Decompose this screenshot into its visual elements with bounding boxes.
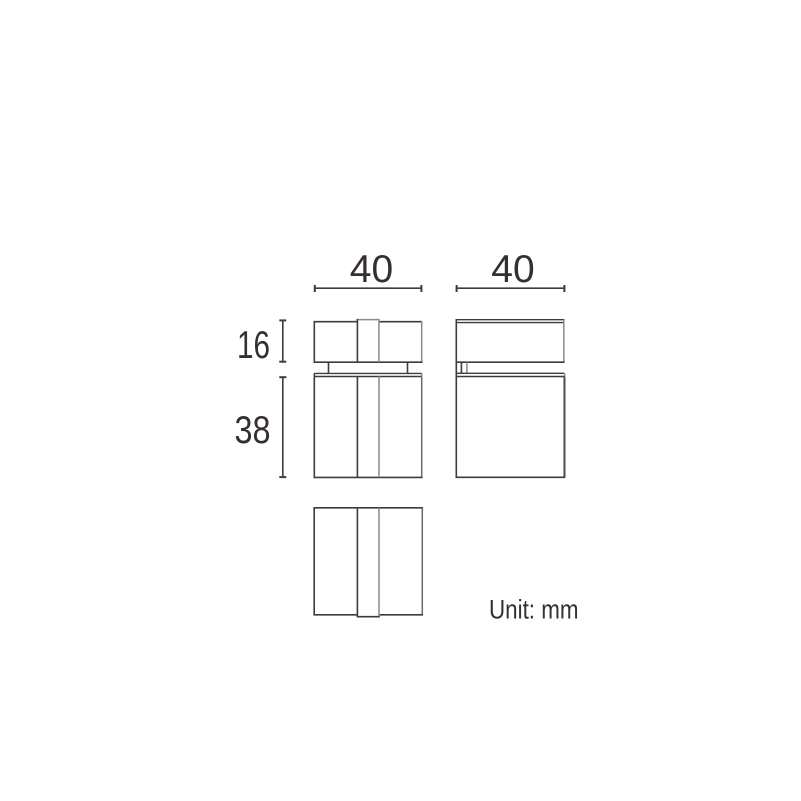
svg-text:Unit: mm: Unit: mm [489,595,579,625]
svg-text:40: 40 [491,248,534,291]
svg-text:16: 16 [237,324,270,367]
svg-text:40: 40 [350,248,393,291]
svg-text:38: 38 [235,409,271,452]
